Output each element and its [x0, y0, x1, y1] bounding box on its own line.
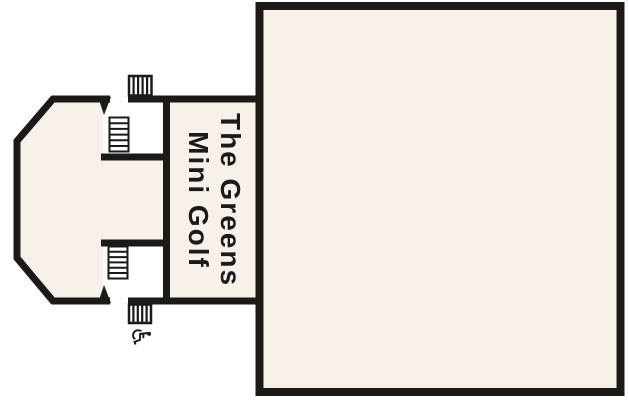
stairs-icon	[110, 118, 129, 152]
deck-plan-figure: ♿ The Greens Mini Golf	[0, 0, 629, 400]
door-opening-bottom	[110, 296, 128, 306]
stairs-icon	[109, 247, 128, 279]
venue-label-line1: The Greens	[215, 113, 246, 287]
main-deck-block	[260, 6, 621, 392]
door-opening-top	[110, 94, 128, 104]
venue-label: The Greens Mini Golf	[183, 113, 246, 287]
venue-label-line2: Mini Golf	[183, 131, 214, 269]
deck-hatch-icon	[129, 305, 151, 324]
wheelchair-accessible-icon: ♿	[125, 325, 155, 348]
deck-plan-page: ♿ The Greens Mini Golf	[0, 0, 629, 400]
deck-hatch-icon	[129, 76, 152, 96]
